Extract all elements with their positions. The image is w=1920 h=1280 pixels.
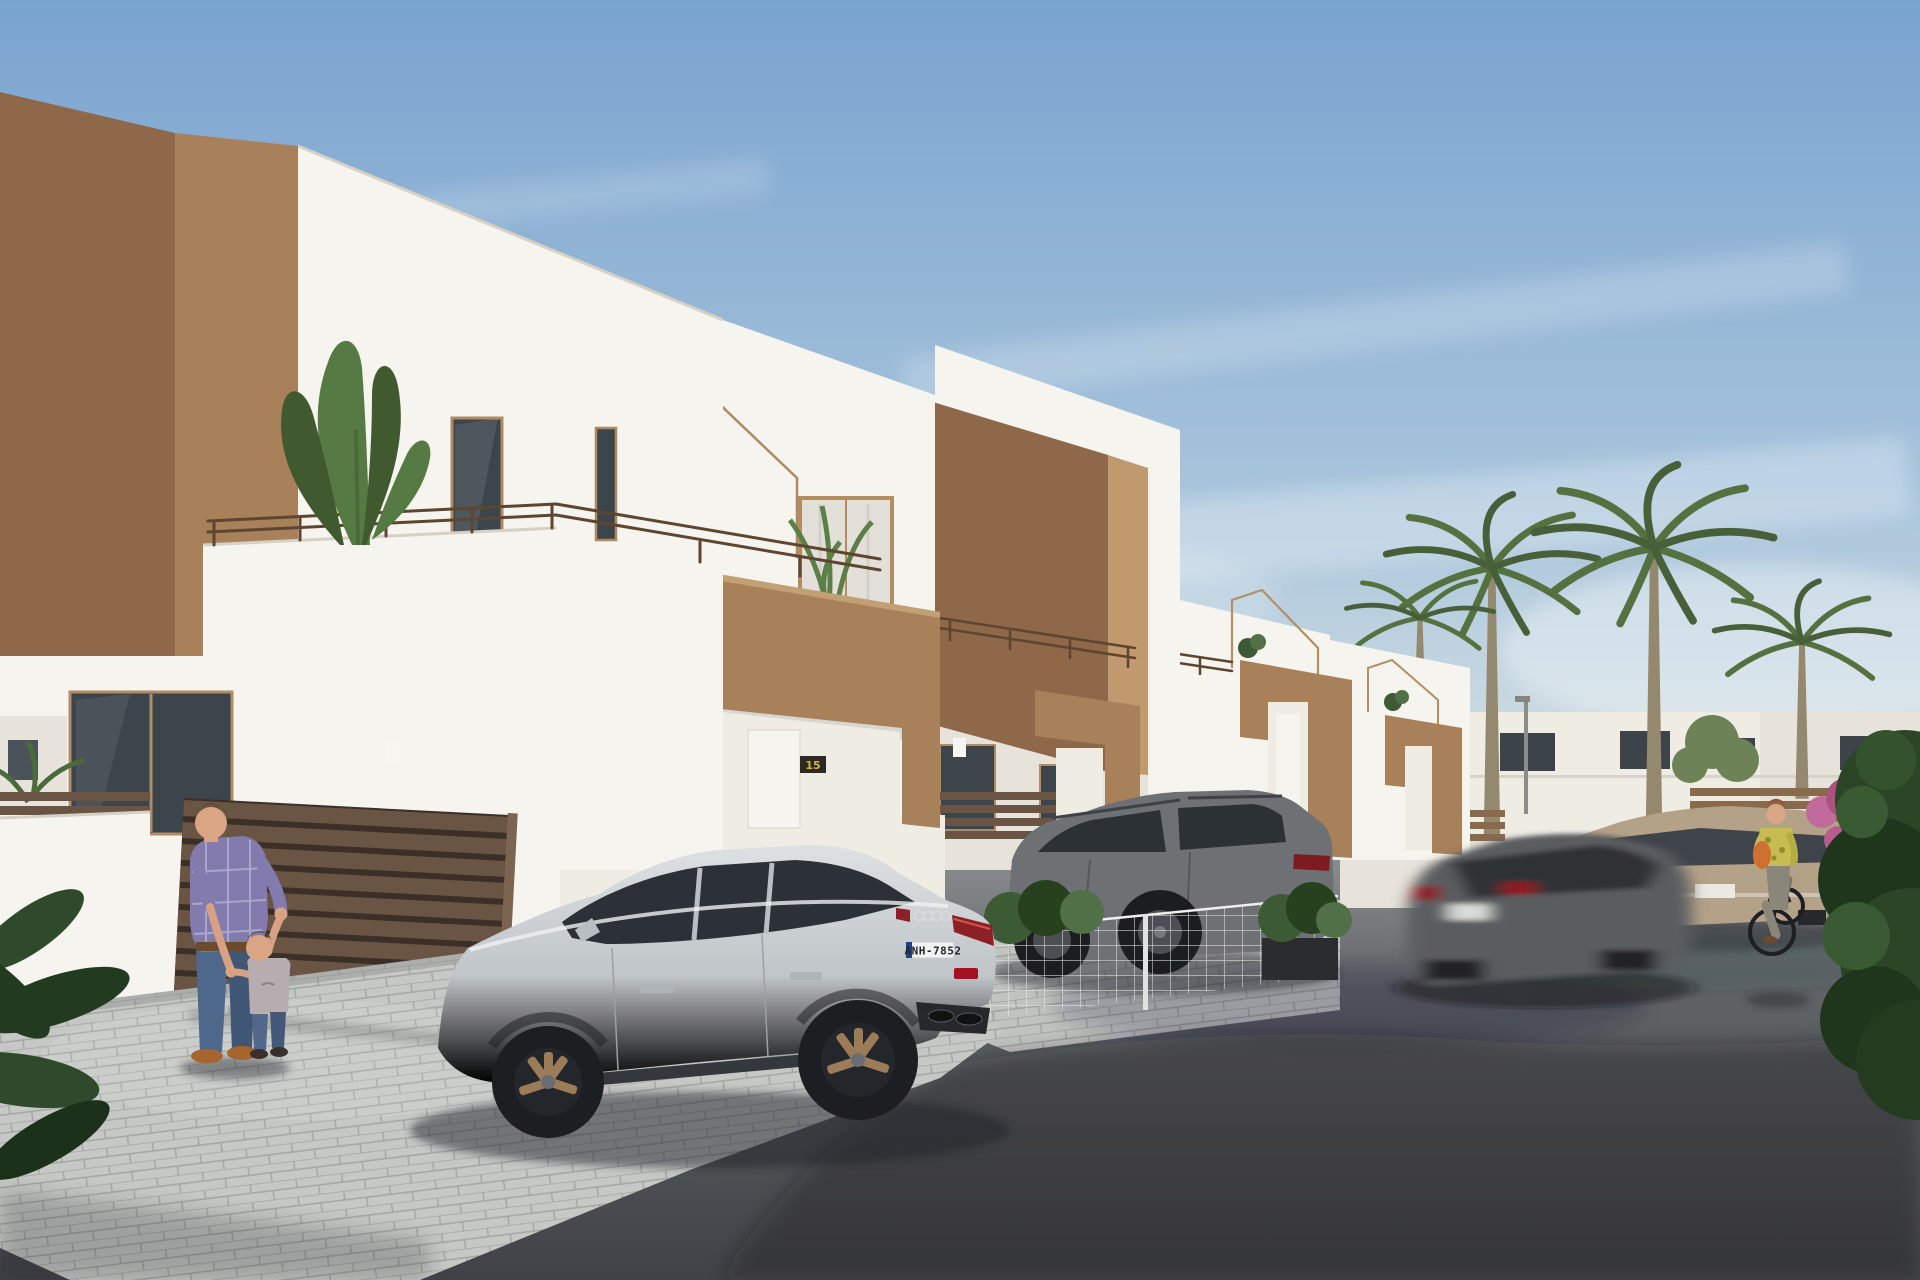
toddler-shirt — [247, 958, 290, 1014]
man-head — [195, 807, 227, 839]
door-handle — [640, 985, 674, 993]
license-plate: ANH-7852 — [905, 942, 962, 958]
orange-bag — [1753, 841, 1771, 869]
entry-door-15 — [748, 730, 800, 828]
render-canvas: 14 15 — [0, 0, 1920, 1280]
rear-wheel — [798, 1000, 918, 1120]
house-2 — [905, 345, 1180, 870]
rs-badge — [954, 968, 978, 979]
rear-plate-blur — [1448, 904, 1490, 920]
license-plate-text: ANH-7852 — [905, 945, 962, 958]
street-render: 14 15 — [0, 0, 1920, 1280]
house-number-plaque-15: 15 — [800, 756, 826, 773]
cyclist-pants — [1766, 866, 1790, 910]
toddler-head — [246, 935, 272, 961]
house-number-right: 15 — [805, 759, 820, 772]
door-handle — [790, 972, 822, 980]
rear-plate — [1695, 884, 1735, 898]
wall-lamp — [953, 738, 966, 757]
suv-taillight — [1293, 854, 1330, 871]
ground-floor-glazing — [940, 745, 995, 830]
planter-box — [1262, 938, 1338, 980]
wall-lamp — [386, 742, 400, 762]
cyclist-head — [1766, 804, 1786, 824]
front-wheel — [492, 1026, 604, 1138]
upper-brown-volume — [0, 92, 175, 684]
